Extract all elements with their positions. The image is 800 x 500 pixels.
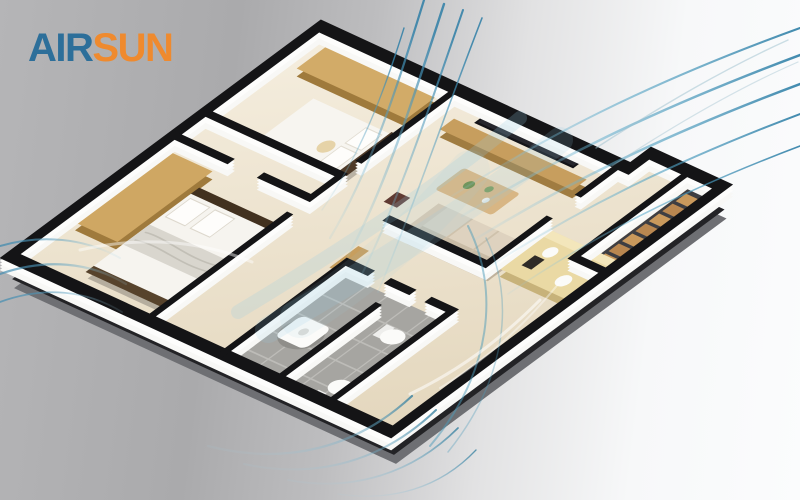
airflow-faint-lines <box>596 40 798 166</box>
logo-text-sun: SUN <box>92 26 172 70</box>
floorplan-scene <box>0 0 800 500</box>
hero-image: AIRSUN <box>0 0 800 500</box>
airsun-logo: AIRSUN <box>28 28 172 68</box>
logo-text-air: AIR <box>28 26 92 70</box>
